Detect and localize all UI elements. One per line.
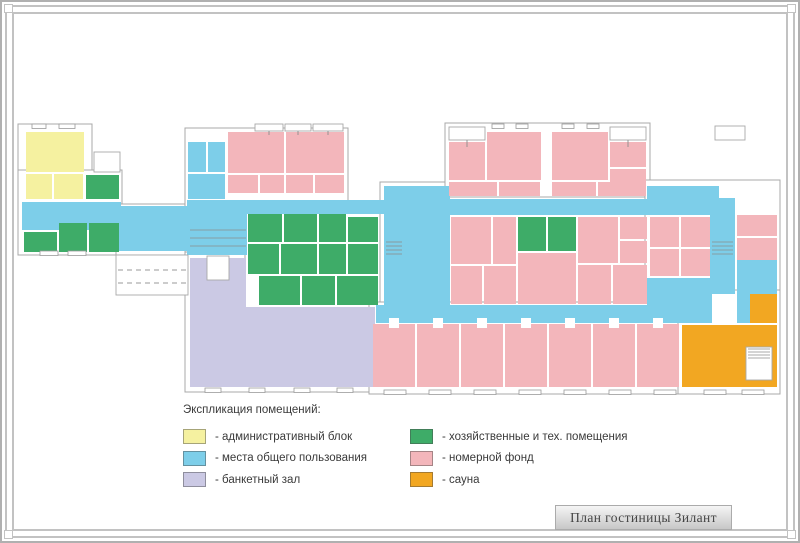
room-rooms <box>260 175 284 193</box>
room-utility <box>248 244 279 274</box>
window-mark <box>704 390 726 395</box>
room-sauna <box>750 294 777 323</box>
legend-label: - сауна <box>442 474 480 486</box>
room-common <box>118 206 188 251</box>
room-rooms <box>593 324 635 387</box>
room-rooms <box>451 266 482 304</box>
room-rooms <box>737 238 777 260</box>
legend-item: - хозяйственные и тех. помещения <box>410 426 627 448</box>
room-utility <box>348 244 378 274</box>
window-mark <box>384 390 406 395</box>
room-utility <box>248 214 282 242</box>
window-mark <box>249 388 265 393</box>
room-rooms <box>286 132 344 173</box>
drawing-title: План гостиницы Зилант <box>570 510 717 526</box>
room-rooms <box>373 324 415 387</box>
legend-swatch-rooms <box>410 451 433 466</box>
room-common <box>188 174 225 199</box>
outline-detail <box>449 127 485 140</box>
legend-title: Экспликация помещений: <box>183 404 627 416</box>
room-utility <box>281 244 317 274</box>
legend-item: - сауна <box>410 469 627 491</box>
room-utility <box>24 232 57 252</box>
legend-swatch-utility <box>410 429 433 444</box>
room-banquet <box>244 307 375 387</box>
legend-label: - номерной фонд <box>442 452 534 464</box>
room-rooms <box>499 182 540 196</box>
window-mark <box>519 390 541 395</box>
room-utility <box>319 214 346 242</box>
door-opening <box>477 318 487 328</box>
room-admin <box>54 174 83 199</box>
room-rooms <box>449 142 485 180</box>
room-utility <box>259 276 300 305</box>
window-mark <box>654 390 676 395</box>
outline-detail <box>94 152 120 172</box>
room-utility <box>89 223 119 252</box>
room-utility <box>337 276 378 305</box>
outline-detail <box>255 124 283 131</box>
window-mark <box>564 390 586 395</box>
window-mark <box>205 388 221 393</box>
legend-label: - хозяйственные и тех. помещения <box>442 431 627 443</box>
room-utility <box>319 244 346 274</box>
window-mark <box>742 390 764 395</box>
legend-swatch-sauna <box>410 472 433 487</box>
legend-columns: - административный блок- места общего по… <box>183 426 627 491</box>
room-rooms <box>681 217 710 247</box>
window-mark <box>294 388 310 393</box>
room-utility <box>284 214 317 242</box>
room-rooms <box>620 217 647 239</box>
title-block: План гостиницы Зилант <box>555 505 732 530</box>
room-admin <box>26 132 84 172</box>
window-mark <box>587 124 599 129</box>
legend-label: - банкетный зал <box>215 474 300 486</box>
legend-swatch-common <box>183 451 206 466</box>
outline-detail <box>285 124 311 131</box>
window-mark <box>40 251 58 256</box>
room-common <box>450 199 648 215</box>
legend-column-left: - административный блок- места общего по… <box>183 426 410 491</box>
room-utility <box>518 217 546 251</box>
room-rooms <box>578 217 618 263</box>
room-rooms <box>417 324 459 387</box>
window-mark <box>429 390 451 395</box>
room-utility <box>548 217 576 251</box>
legend-item: - банкетный зал <box>183 469 410 491</box>
room-common <box>188 142 206 172</box>
room-rooms <box>487 132 541 180</box>
room-rooms <box>228 132 284 173</box>
room-rooms <box>451 217 491 264</box>
legend-label: - административный блок <box>215 431 352 443</box>
drawing-sheet: Экспликация помещений: - административны… <box>0 0 800 543</box>
room-rooms <box>449 182 497 196</box>
room-rooms <box>493 217 516 264</box>
room-common <box>384 186 450 323</box>
room-rooms <box>552 132 608 180</box>
window-mark <box>516 124 528 129</box>
room-common <box>376 305 699 323</box>
legend-swatch-banquet <box>183 472 206 487</box>
legend-item: - номерной фонд <box>410 448 627 470</box>
legend-column-right: - хозяйственные и тех. помещения- номерн… <box>410 426 627 491</box>
legend-swatch-admin <box>183 429 206 444</box>
window-mark <box>32 124 46 129</box>
room-rooms <box>518 253 576 304</box>
door-opening <box>609 318 619 328</box>
outline-detail <box>610 127 646 140</box>
room-utility <box>59 223 87 252</box>
legend-label: - места общего пользования <box>215 452 367 464</box>
room-admin <box>26 174 52 199</box>
outline-detail <box>207 256 229 280</box>
legend-item: - административный блок <box>183 426 410 448</box>
door-opening <box>653 318 663 328</box>
room-rooms <box>505 324 547 387</box>
window-mark <box>68 251 86 256</box>
room-rooms <box>228 175 258 193</box>
room-rooms <box>650 217 679 247</box>
room-rooms <box>315 175 344 193</box>
room-rooms <box>286 175 313 193</box>
room-rooms <box>681 249 710 276</box>
room-utility <box>86 175 119 199</box>
room-rooms <box>578 265 611 304</box>
room-utility <box>348 217 378 242</box>
outline-detail <box>313 124 343 131</box>
room-rooms <box>613 265 647 304</box>
room-utility <box>302 276 335 305</box>
room-rooms <box>484 266 516 304</box>
window-mark <box>337 388 353 393</box>
room-common <box>187 200 247 255</box>
legend-item: - места общего пользования <box>183 448 410 470</box>
window-mark <box>609 390 631 395</box>
window-mark <box>562 124 574 129</box>
outline-detail <box>715 126 745 140</box>
door-opening <box>389 318 399 328</box>
room-rooms <box>737 215 777 236</box>
room-common <box>208 142 225 172</box>
room-common <box>647 186 719 215</box>
door-opening <box>433 318 443 328</box>
door-opening <box>521 318 531 328</box>
room-rooms <box>461 324 503 387</box>
window-mark <box>492 124 504 129</box>
window-mark <box>474 390 496 395</box>
room-rooms <box>637 324 679 387</box>
legend: Экспликация помещений: - административны… <box>183 404 627 491</box>
room-rooms <box>620 241 647 263</box>
room-rooms <box>549 324 591 387</box>
outline-detail <box>116 255 188 295</box>
room-rooms <box>552 182 596 196</box>
room-rooms <box>598 182 646 196</box>
window-mark <box>59 124 75 129</box>
room-rooms <box>650 249 679 276</box>
door-opening <box>565 318 575 328</box>
